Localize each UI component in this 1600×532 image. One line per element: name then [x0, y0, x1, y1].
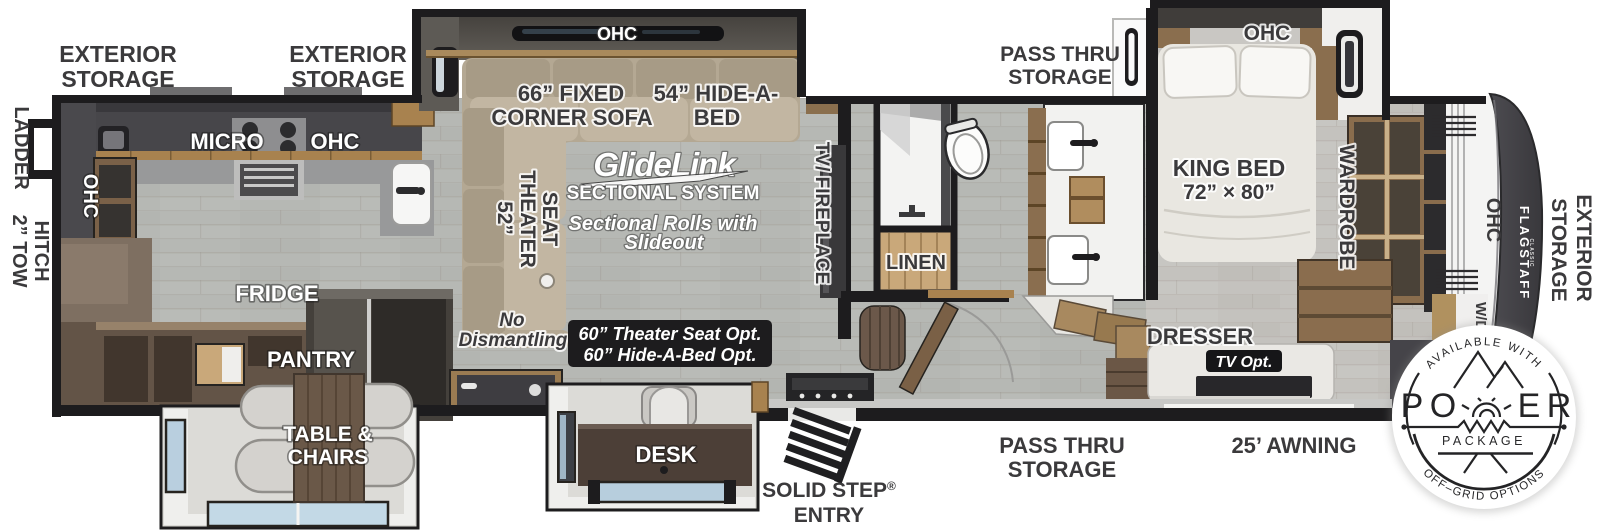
svg-text:LADDER: LADDER: [10, 106, 32, 190]
svg-text:FRIDGE: FRIDGE: [235, 281, 318, 306]
svg-text:SOLID STEP®: SOLID STEP®: [762, 479, 896, 502]
svg-text:SECTIONAL SYSTEM: SECTIONAL SYSTEM: [567, 183, 760, 204]
svg-text:STORAGE: STORAGE: [291, 66, 404, 92]
svg-text:STORAGE: STORAGE: [61, 66, 174, 92]
svg-text:OHC: OHC: [79, 174, 101, 218]
svg-text:R: R: [1547, 387, 1572, 425]
svg-text:TABLE &: TABLE &: [283, 423, 372, 446]
svg-text:OHC: OHC: [597, 24, 637, 44]
svg-text:Dismantling: Dismantling: [459, 330, 568, 351]
svg-text:P: P: [1401, 387, 1424, 425]
svg-text:DRESSER: DRESSER: [1147, 324, 1253, 349]
svg-text:OHC: OHC: [1244, 22, 1291, 45]
svg-text:WARDROBE: WARDROBE: [1335, 145, 1358, 270]
svg-text:DESK: DESK: [635, 442, 696, 467]
svg-text:PASS THRU: PASS THRU: [1000, 43, 1120, 66]
svg-text:2” TOW: 2” TOW: [8, 215, 30, 288]
svg-text:60” Theater Seat Opt.: 60” Theater Seat Opt.: [578, 324, 761, 344]
svg-text:STORAGE: STORAGE: [1547, 198, 1570, 301]
svg-text:EXTERIOR: EXTERIOR: [1572, 194, 1595, 301]
svg-text:25’ AWNING: 25’ AWNING: [1231, 433, 1356, 458]
svg-text:EXTERIOR: EXTERIOR: [59, 41, 177, 67]
svg-text:BED: BED: [694, 105, 740, 130]
svg-text:OHC: OHC: [1482, 198, 1504, 242]
svg-text:SEAT: SEAT: [538, 192, 561, 247]
svg-text:LINEN: LINEN: [886, 252, 946, 274]
svg-text:CHAIRS: CHAIRS: [288, 446, 369, 469]
svg-text:STORAGE: STORAGE: [1008, 66, 1111, 89]
svg-text:PASS THRU: PASS THRU: [999, 433, 1125, 458]
svg-text:CORNER SOFA: CORNER SOFA: [491, 105, 652, 130]
svg-text:OHC: OHC: [311, 129, 360, 154]
svg-text:54” HIDE-A-: 54” HIDE-A-: [654, 81, 779, 106]
svg-text:THEATER: THEATER: [516, 170, 539, 268]
svg-text:PACKAGE: PACKAGE: [1442, 434, 1526, 448]
svg-text:60” Hide-A-Bed Opt.: 60” Hide-A-Bed Opt.: [583, 345, 756, 365]
svg-text:CLASSIC: CLASSIC: [1528, 239, 1534, 268]
svg-text:52”: 52”: [493, 201, 516, 235]
svg-text:TV Opt.: TV Opt.: [1216, 354, 1273, 371]
svg-text:No: No: [499, 310, 524, 331]
svg-text:STORAGE: STORAGE: [1008, 457, 1116, 482]
svg-text:HITCH: HITCH: [30, 220, 52, 281]
svg-text:EXTERIOR: EXTERIOR: [289, 41, 407, 67]
svg-text:Slideout: Slideout: [625, 232, 705, 254]
svg-text:KING BED: KING BED: [1173, 155, 1285, 181]
svg-text:O: O: [1430, 387, 1456, 425]
svg-text:72” × 80”: 72” × 80”: [1183, 181, 1275, 204]
svg-text:MICRO: MICRO: [190, 129, 263, 154]
svg-text:66” FIXED: 66” FIXED: [518, 81, 624, 106]
svg-text:TV/ FIREPLACE: TV/ FIREPLACE: [811, 142, 832, 285]
svg-text:E: E: [1518, 387, 1541, 425]
svg-text:ENTRY: ENTRY: [794, 504, 864, 527]
svg-text:PANTRY: PANTRY: [267, 347, 355, 372]
